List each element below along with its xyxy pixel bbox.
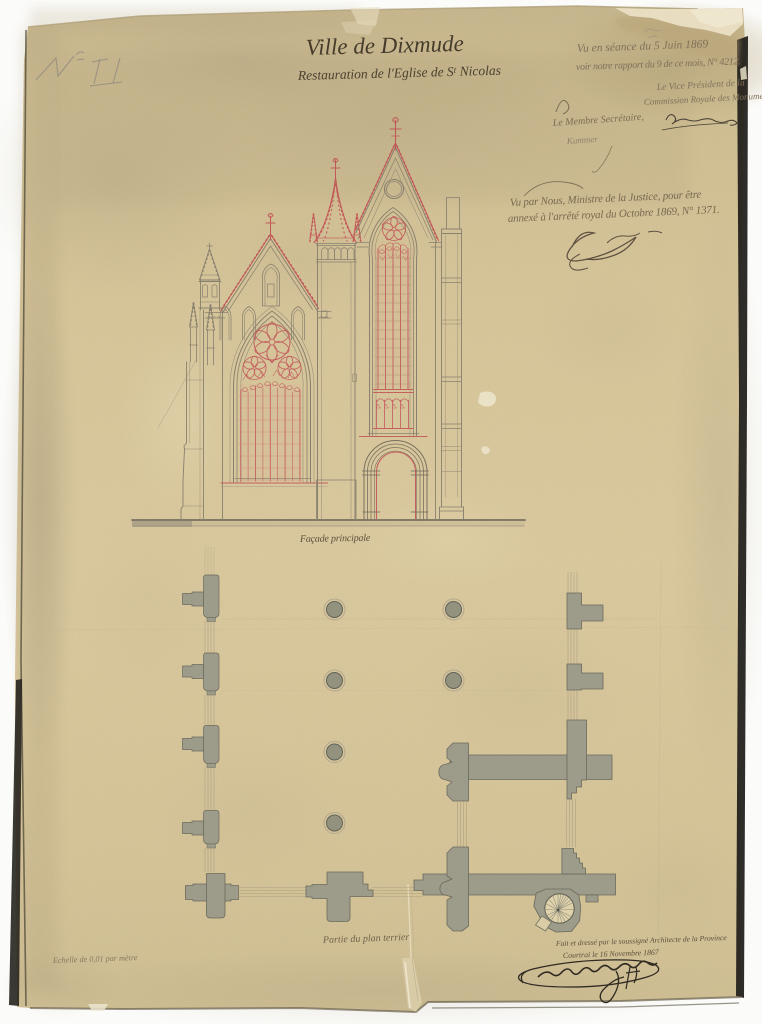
- svg-text:Façade principale: Façade principale: [299, 533, 371, 545]
- svg-text:Ville de Dixmude: Ville de Dixmude: [305, 31, 464, 60]
